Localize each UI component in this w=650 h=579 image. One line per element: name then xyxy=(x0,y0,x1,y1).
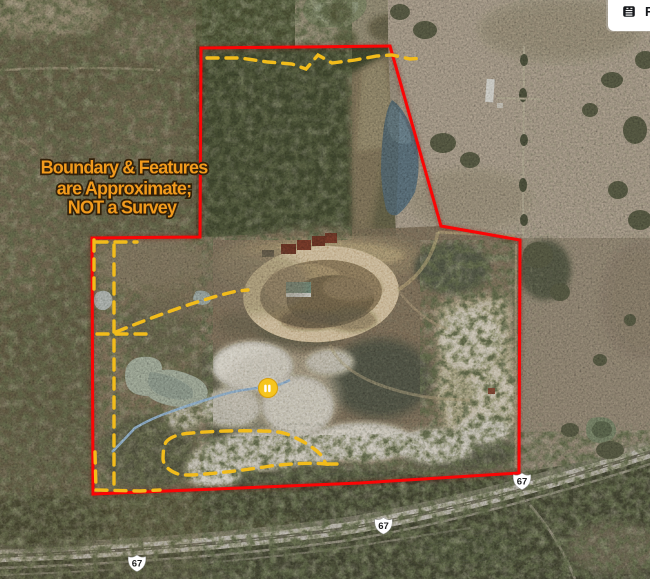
svg-text:67: 67 xyxy=(378,521,389,532)
svg-text:are Approximate;: are Approximate; xyxy=(57,179,192,199)
svg-text:67: 67 xyxy=(132,558,143,569)
svg-text:Boundary & Features: Boundary & Features xyxy=(41,158,209,178)
svg-text:NOT a Survey: NOT a Survey xyxy=(68,198,177,218)
svg-text:67: 67 xyxy=(517,476,528,487)
svg-text:R: R xyxy=(645,4,650,19)
